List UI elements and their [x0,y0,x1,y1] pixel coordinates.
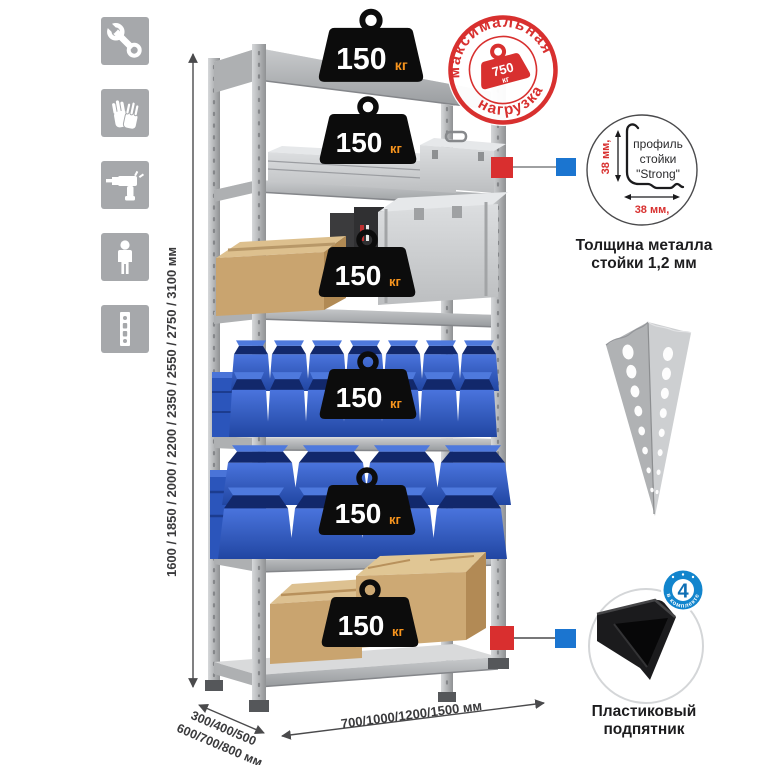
connector-bottom [490,626,576,650]
infographic-canvas: 1600 / 1850 / 2000 / 2200 / 2350 / 2550 … [0,0,765,765]
svg-text:150: 150 [338,610,385,641]
metal-thickness-caption-line2: стойки 1,2 мм [591,255,696,272]
foot-caption-line2: подпятник [603,721,684,738]
connector-bottom-red-square [490,626,514,650]
product-infographic: 1600 / 1850 / 2000 / 2200 / 2350 / 2550 … [0,0,765,765]
connector-top [491,157,576,178]
kit-badge-value: 4 [677,581,689,603]
svg-text:150: 150 [335,260,382,291]
icon-column [101,17,149,353]
svg-text:кг: кг [395,57,408,73]
corner-post-image [606,322,691,516]
profile-detail: 38 мм, 38 мм, профиль стойки "Strong" [587,115,697,225]
width-dimension-label: 700/1000/1200/1500 мм [340,698,483,731]
rack-profile-icon [101,305,149,353]
foot-caption-line1: Пластиковый [592,703,697,720]
max-load-stamp: максимальная нагрузка 750 кг [433,1,572,139]
connector-top-red-square [491,157,513,178]
weight-badge-1: 150 кг [319,12,423,82]
height-dimension-label: 1600 / 1850 / 2000 / 2200 / 2350 / 2550 … [164,247,179,577]
drill-icon [101,161,149,209]
profile-dim-horizontal: 38 мм, [635,204,670,216]
person-icon [101,233,149,281]
svg-text:"Strong": "Strong" [636,167,680,181]
svg-text:150: 150 [336,43,386,76]
svg-text:150: 150 [336,127,383,158]
profile-dim-vertical: 38 мм, [600,140,612,175]
svg-text:кг: кг [392,624,405,639]
svg-text:стойки: стойки [640,152,677,166]
svg-text:150: 150 [336,382,383,413]
connector-top-blue-square [556,158,576,176]
foot-detail: 4 в комплекте Пластиковый подпятник [589,568,705,738]
metal-thickness-caption-line1: Толщина металла [576,237,713,254]
connector-bottom-blue-square [555,629,576,648]
svg-text:кг: кг [390,141,403,156]
weight-badge-2: 150 кг [320,99,417,164]
svg-text:150: 150 [335,498,382,529]
depth-dimension: 300/400/500 600/700/800 мм [175,705,265,765]
back-left-post [208,58,220,680]
svg-text:кг: кг [390,396,403,411]
width-dimension: 700/1000/1200/1500 мм [282,698,544,736]
svg-text:кг: кг [389,512,402,527]
wrench-icon [101,17,149,65]
kit-badge: 4 в комплекте [661,568,705,612]
svg-text:профиль: профиль [633,137,683,151]
svg-text:кг: кг [389,274,402,289]
height-dimension: 1600 / 1850 / 2000 / 2200 / 2350 / 2550 … [164,54,193,687]
gloves-icon [101,89,149,137]
